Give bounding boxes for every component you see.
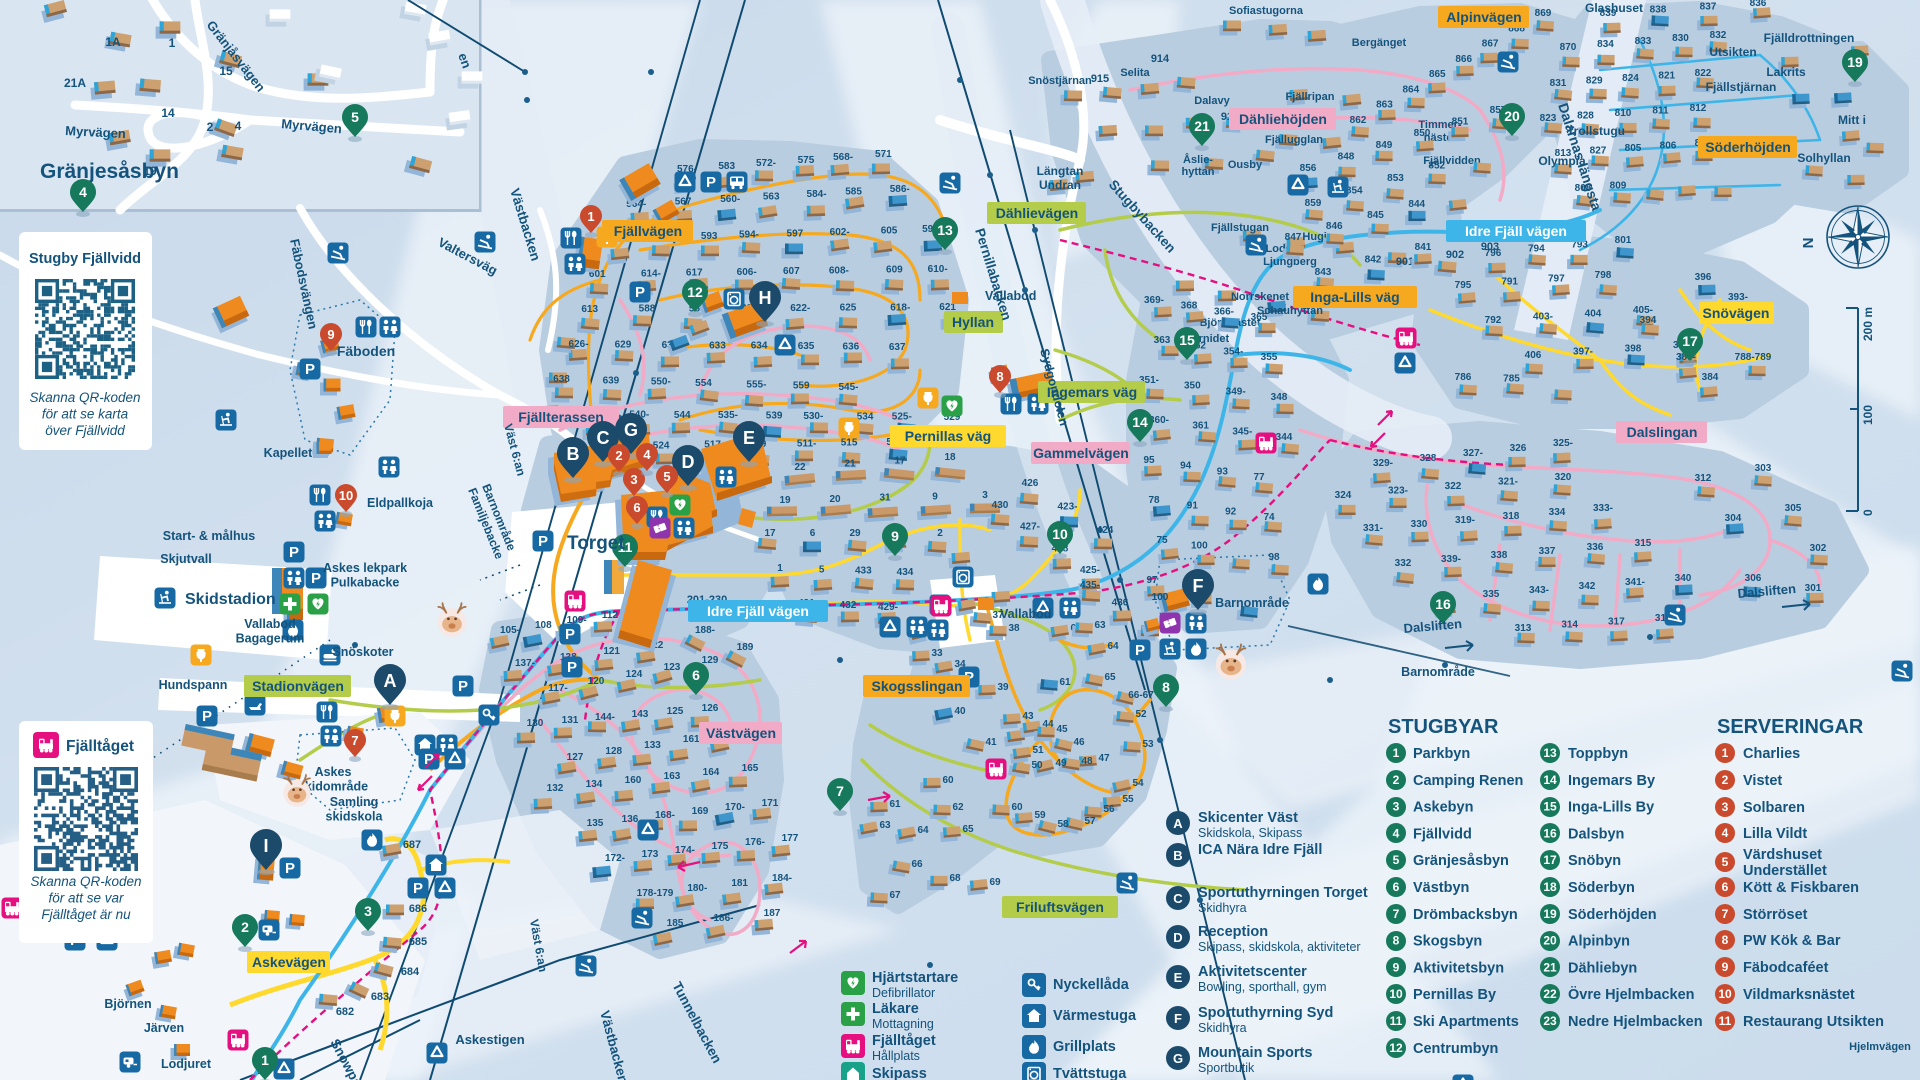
svg-text:17: 17: [764, 528, 776, 539]
svg-text:Stugby Fjällvidd: Stugby Fjällvidd: [29, 251, 141, 267]
svg-text:för att se karta: för att se karta: [42, 407, 129, 422]
svg-text:126: 126: [702, 703, 719, 714]
svg-text:7: 7: [1722, 907, 1729, 921]
svg-text:Nedre Hjelmbacken: Nedre Hjelmbacken: [1568, 1014, 1703, 1030]
svg-text:685: 685: [409, 936, 427, 948]
svg-text:618-: 618-: [890, 302, 910, 313]
svg-text:Fjällugglan: Fjällugglan: [1265, 134, 1323, 146]
svg-text:Sportuthyrning Syd: Sportuthyrning Syd: [1198, 1005, 1333, 1021]
svg-text:64: 64: [1107, 641, 1119, 652]
svg-text:Restaurang Utsikten: Restaurang Utsikten: [1743, 1014, 1884, 1030]
svg-text:365: 365: [1251, 312, 1268, 323]
svg-text:823: 823: [1540, 113, 1557, 124]
svg-text:433: 433: [855, 566, 872, 577]
svg-text:100: 100: [1152, 592, 1169, 603]
svg-text:14: 14: [161, 106, 175, 120]
svg-text:607: 607: [783, 266, 800, 277]
svg-text:4: 4: [643, 447, 651, 462]
svg-text:75: 75: [1156, 535, 1168, 546]
svg-text:5: 5: [663, 469, 670, 484]
svg-text:4: 4: [1722, 826, 1729, 840]
svg-text:PW Kök & Bar: PW Kök & Bar: [1743, 933, 1841, 949]
svg-text:844: 844: [1408, 199, 1425, 210]
svg-text:Fjällterassen: Fjällterassen: [518, 409, 604, 425]
svg-text:0: 0: [1861, 509, 1875, 516]
svg-text:178-179: 178-179: [637, 888, 674, 899]
svg-text:P: P: [565, 626, 575, 643]
svg-text:23: 23: [1543, 1014, 1557, 1028]
svg-text:Lilla Vildt: Lilla Vildt: [1743, 826, 1807, 842]
svg-text:1A: 1A: [105, 35, 121, 49]
svg-text:348: 348: [1271, 392, 1288, 403]
svg-text:1: 1: [1722, 746, 1729, 760]
svg-text:P: P: [413, 880, 423, 897]
svg-text:584-: 584-: [807, 189, 827, 200]
svg-text:16: 16: [1435, 596, 1451, 612]
svg-text:339-: 339-: [1441, 554, 1461, 565]
svg-text:345-: 345-: [1232, 426, 1252, 437]
svg-text:Barnområde: Barnområde: [1215, 596, 1289, 610]
svg-text:605: 605: [881, 225, 898, 236]
svg-text:45: 45: [1056, 724, 1068, 735]
svg-text:638: 638: [553, 374, 570, 385]
svg-text:47: 47: [1098, 753, 1110, 764]
svg-text:Bowling, sporthall, gym: Bowling, sporthall, gym: [1198, 980, 1327, 994]
svg-text:7: 7: [351, 733, 358, 748]
svg-text:168-: 168-: [655, 810, 675, 821]
svg-text:683: 683: [371, 991, 389, 1003]
svg-text:851: 851: [1452, 117, 1469, 128]
svg-text:863: 863: [1376, 100, 1393, 111]
svg-text:Toppbyn: Toppbyn: [1568, 746, 1628, 762]
svg-text:Övre Hjelmbacken: Övre Hjelmbacken: [1568, 986, 1695, 1003]
svg-text:Idre Fjäll vägen: Idre Fjäll vägen: [1465, 223, 1567, 239]
svg-text:867: 867: [1482, 39, 1499, 50]
svg-text:22: 22: [794, 462, 806, 473]
svg-text:8: 8: [1393, 934, 1400, 948]
svg-text:74: 74: [1263, 512, 1275, 523]
svg-text:567: 567: [675, 197, 692, 208]
svg-text:19: 19: [779, 495, 791, 506]
svg-text:575: 575: [798, 155, 815, 166]
svg-text:859: 859: [1305, 198, 1322, 209]
svg-text:9: 9: [327, 327, 334, 342]
svg-text:368: 368: [1181, 301, 1198, 312]
svg-text:841: 841: [1415, 242, 1432, 253]
svg-text:843: 843: [1315, 267, 1332, 278]
svg-text:324: 324: [1335, 490, 1352, 501]
svg-text:A: A: [384, 671, 397, 691]
svg-text:Fjälltåget är nu: Fjälltåget är nu: [41, 907, 131, 922]
svg-text:20: 20: [1543, 934, 1557, 948]
svg-text:78: 78: [1148, 495, 1160, 506]
svg-text:Skipass, skidskola, aktivitete: Skipass, skidskola, aktiviteter: [1198, 940, 1361, 954]
svg-text:Eldpallkoja: Eldpallkoja: [367, 496, 434, 510]
svg-text:Bergänget: Bergänget: [1352, 37, 1407, 49]
svg-text:530-: 530-: [803, 411, 823, 422]
svg-text:5: 5: [819, 564, 825, 575]
svg-text:187: 187: [764, 908, 781, 919]
svg-text:550-: 550-: [651, 377, 671, 388]
svg-text:Skogsslingan: Skogsslingan: [871, 678, 962, 694]
svg-text:Aktivitetsbyn: Aktivitetsbyn: [1413, 960, 1504, 976]
svg-text:560-: 560-: [720, 194, 740, 205]
svg-text:46: 46: [1073, 737, 1085, 748]
svg-text:Inga-Lills By: Inga-Lills By: [1568, 800, 1654, 816]
svg-text:för att se var: för att se var: [48, 891, 124, 906]
svg-text:50: 50: [1031, 760, 1043, 771]
svg-text:68: 68: [949, 873, 961, 884]
svg-text:845: 845: [1367, 210, 1384, 221]
svg-text:67: 67: [889, 890, 901, 901]
svg-text:Västbyn: Västbyn: [1413, 880, 1469, 896]
svg-text:41: 41: [985, 737, 997, 748]
svg-text:C: C: [1173, 891, 1183, 906]
svg-text:127: 127: [567, 752, 584, 763]
svg-text:686: 686: [409, 903, 427, 915]
svg-text:796: 796: [1485, 248, 1502, 259]
svg-text:Understället: Understället: [1743, 863, 1827, 879]
svg-text:3: 3: [982, 490, 988, 501]
svg-text:135: 135: [587, 818, 604, 829]
svg-text:20: 20: [829, 494, 841, 505]
svg-text:361: 361: [1192, 421, 1209, 432]
svg-text:320: 320: [1555, 472, 1572, 483]
svg-text:585: 585: [845, 187, 862, 198]
svg-text:870: 870: [1560, 42, 1577, 53]
svg-text:137-: 137-: [515, 658, 535, 669]
svg-text:33: 33: [931, 648, 943, 659]
svg-text:403-: 403-: [1533, 312, 1553, 323]
svg-text:Dähliehöjden: Dähliehöjden: [1239, 111, 1327, 127]
svg-text:Hjärtstartare: Hjärtstartare: [872, 970, 958, 986]
svg-text:Järven: Järven: [144, 1021, 184, 1035]
svg-text:Värmestuga: Värmestuga: [1053, 1008, 1137, 1024]
svg-text:Inga-Lills väg: Inga-Lills väg: [1310, 289, 1399, 305]
svg-text:P: P: [305, 361, 315, 378]
svg-text:Torget: Torget: [567, 533, 625, 554]
svg-text:349-: 349-: [1226, 386, 1246, 397]
svg-text:Snöbyn: Snöbyn: [1568, 853, 1621, 869]
svg-text:Pulkabacke: Pulkabacke: [331, 575, 400, 589]
svg-text:333-: 333-: [1593, 503, 1613, 514]
svg-text:684: 684: [401, 966, 420, 978]
svg-text:Dalavy: Dalavy: [1194, 95, 1230, 107]
svg-text:4: 4: [235, 119, 242, 133]
svg-text:123: 123: [664, 662, 681, 673]
svg-text:Västvägen: Västvägen: [706, 725, 776, 741]
svg-text:6: 6: [1393, 880, 1400, 894]
svg-text:406: 406: [1525, 350, 1542, 361]
svg-text:9: 9: [932, 491, 938, 502]
svg-text:829: 829: [1586, 76, 1603, 87]
svg-text:6: 6: [692, 667, 700, 683]
svg-text:515: 515: [841, 438, 858, 449]
svg-text:10: 10: [1389, 987, 1403, 1001]
svg-text:Mountain Sports: Mountain Sports: [1198, 1045, 1312, 1061]
svg-text:125: 125: [667, 706, 684, 717]
svg-text:14: 14: [1132, 414, 1148, 430]
svg-text:51: 51: [1032, 745, 1044, 756]
svg-text:G: G: [1173, 1051, 1183, 1066]
svg-text:P: P: [567, 659, 577, 676]
svg-text:170-: 170-: [725, 802, 745, 813]
svg-text:384: 384: [1702, 372, 1719, 383]
svg-text:54: 54: [1132, 778, 1144, 789]
svg-text:568-: 568-: [833, 152, 853, 163]
svg-text:P: P: [289, 544, 299, 561]
svg-text:809: 809: [1610, 181, 1627, 192]
svg-text:Lakrits: Lakrits: [1766, 65, 1806, 79]
svg-text:P: P: [1135, 642, 1145, 659]
svg-text:634: 634: [751, 341, 768, 352]
svg-text:571: 571: [875, 149, 892, 160]
svg-text:404: 404: [1585, 308, 1602, 319]
svg-text:Vallabod: Vallabod: [985, 289, 1036, 303]
svg-text:12: 12: [1389, 1041, 1403, 1055]
svg-text:Längtan: Längtan: [1037, 164, 1084, 178]
svg-text:165: 165: [742, 763, 759, 774]
svg-text:60: 60: [1011, 802, 1023, 813]
svg-text:394: 394: [1640, 315, 1657, 326]
svg-text:Nyckellåda: Nyckellåda: [1053, 977, 1130, 993]
svg-text:801: 801: [1615, 235, 1632, 246]
svg-text:334: 334: [1549, 507, 1566, 518]
svg-text:363: 363: [1154, 335, 1171, 346]
svg-text:317: 317: [1608, 616, 1625, 627]
svg-text:424: 424: [1097, 525, 1114, 536]
svg-text:8: 8: [996, 369, 1003, 384]
svg-text:134: 134: [586, 779, 603, 790]
svg-text:21A: 21A: [64, 76, 86, 90]
svg-text:161: 161: [683, 734, 700, 745]
svg-text:Sportbutik: Sportbutik: [1198, 1061, 1255, 1075]
svg-text:65: 65: [1104, 672, 1116, 683]
svg-text:608-: 608-: [829, 265, 849, 276]
svg-text:Myrvägen: Myrvägen: [65, 123, 126, 141]
svg-text:1: 1: [169, 36, 176, 50]
svg-text:369-: 369-: [1144, 295, 1164, 306]
svg-text:40: 40: [954, 706, 966, 717]
svg-text:Skidskola, Skipass: Skidskola, Skipass: [1198, 826, 1302, 840]
svg-text:Vistet: Vistet: [1743, 773, 1782, 789]
svg-text:14: 14: [1543, 773, 1557, 787]
svg-text:38: 38: [1008, 623, 1020, 634]
svg-text:P: P: [706, 174, 716, 191]
svg-text:Tvättstuga: Tvättstuga: [1053, 1066, 1127, 1080]
svg-text:31: 31: [879, 493, 891, 504]
svg-text:635: 635: [798, 341, 815, 352]
svg-text:318: 318: [1503, 511, 1520, 522]
svg-text:D: D: [1173, 930, 1182, 945]
svg-text:172-: 172-: [605, 853, 625, 864]
svg-text:423-: 423-: [1057, 502, 1077, 513]
svg-text:21: 21: [844, 459, 856, 470]
svg-text:1: 1: [777, 563, 783, 574]
svg-text:174-: 174-: [675, 845, 695, 856]
svg-text:A: A: [1173, 816, 1183, 831]
svg-text:94: 94: [1180, 461, 1192, 472]
svg-text:10: 10: [339, 488, 353, 503]
svg-text:F: F: [1174, 1011, 1182, 1026]
svg-text:301: 301: [1805, 583, 1822, 594]
svg-text:429-: 429-: [878, 602, 898, 613]
svg-text:Ski Apartments: Ski Apartments: [1413, 1014, 1519, 1030]
svg-text:52: 52: [1135, 709, 1147, 720]
svg-text:9: 9: [1393, 960, 1400, 974]
svg-text:330: 330: [1411, 519, 1428, 530]
svg-text:63: 63: [879, 820, 891, 831]
svg-text:327-: 327-: [1463, 448, 1483, 459]
svg-text:185: 185: [667, 918, 684, 929]
svg-text:836: 836: [1750, 0, 1767, 9]
svg-text:434: 434: [897, 567, 914, 578]
svg-text:393-: 393-: [1728, 292, 1748, 303]
svg-text:3: 3: [364, 903, 372, 919]
svg-text:306: 306: [1745, 573, 1762, 584]
svg-text:430: 430: [992, 500, 1009, 511]
svg-text:335: 335: [1483, 589, 1500, 600]
svg-text:342: 342: [1579, 581, 1596, 592]
svg-text:Grillplats: Grillplats: [1053, 1039, 1116, 1055]
svg-text:Utsikten: Utsikten: [1709, 45, 1756, 59]
svg-text:852: 852: [1428, 161, 1445, 172]
svg-text:850: 850: [1414, 128, 1431, 139]
svg-text:39: 39: [997, 682, 1009, 693]
svg-text:304: 304: [1725, 513, 1742, 524]
svg-text:121: 121: [603, 646, 620, 657]
svg-text:Hållplats: Hållplats: [872, 1049, 920, 1063]
svg-text:43: 43: [1022, 711, 1034, 722]
svg-text:Söderhöjden: Söderhöjden: [1568, 907, 1657, 923]
svg-text:435-: 435-: [1080, 580, 1100, 591]
svg-text:Reception: Reception: [1198, 924, 1268, 940]
svg-text:Defibrillator: Defibrillator: [872, 986, 935, 1000]
svg-text:Vildmarksnästet: Vildmarksnästet: [1743, 987, 1855, 1003]
svg-text:129: 129: [702, 655, 719, 666]
svg-text:Åslie-: Åslie-: [1183, 153, 1213, 166]
svg-text:837: 837: [1700, 1, 1717, 12]
svg-text:830: 830: [1672, 33, 1689, 44]
svg-text:805: 805: [1625, 143, 1642, 154]
svg-text:Mottagning: Mottagning: [872, 1017, 934, 1031]
svg-text:321-: 321-: [1498, 477, 1518, 488]
svg-text:332: 332: [1395, 558, 1412, 569]
svg-text:337: 337: [1539, 546, 1556, 557]
svg-text:117-: 117-: [548, 683, 567, 694]
svg-text:583: 583: [718, 161, 735, 172]
svg-text:100: 100: [1861, 405, 1875, 425]
svg-text:Idre Fjäll vägen: Idre Fjäll vägen: [707, 603, 809, 619]
svg-text:64: 64: [917, 825, 929, 836]
svg-text:602-: 602-: [830, 227, 850, 238]
svg-text:Björnen: Björnen: [104, 997, 151, 1011]
svg-text:355: 355: [1261, 352, 1278, 363]
svg-text:Bagagerum: Bagagerum: [236, 631, 305, 645]
svg-text:827: 827: [1590, 146, 1607, 157]
svg-text:846: 846: [1326, 221, 1343, 232]
svg-text:P: P: [311, 570, 321, 587]
svg-text:P: P: [458, 678, 468, 695]
svg-text:Skidstadion: Skidstadion: [185, 591, 276, 608]
svg-text:Solbaren: Solbaren: [1743, 800, 1805, 816]
svg-text:Dähliebyn: Dähliebyn: [1568, 960, 1637, 976]
svg-text:2: 2: [615, 448, 622, 463]
svg-text:61: 61: [1059, 677, 1071, 688]
svg-text:Alpinbyn: Alpinbyn: [1568, 934, 1630, 950]
svg-text:N: N: [1800, 238, 1817, 249]
svg-text:17: 17: [1543, 853, 1557, 867]
svg-text:100: 100: [1191, 541, 1208, 552]
svg-text:177: 177: [782, 833, 799, 844]
svg-text:Undran: Undran: [1039, 178, 1081, 192]
svg-text:Fäbodcaféet: Fäbodcaféet: [1743, 960, 1829, 976]
svg-text:5: 5: [1722, 855, 1729, 869]
svg-text:902: 902: [1446, 249, 1464, 261]
svg-text:617: 617: [686, 268, 703, 279]
svg-text:625: 625: [840, 303, 857, 314]
svg-text:20: 20: [1504, 108, 1520, 124]
svg-text:15: 15: [219, 64, 233, 78]
svg-text:555-: 555-: [746, 379, 766, 390]
svg-text:614-: 614-: [641, 268, 661, 279]
svg-text:21: 21: [1194, 118, 1210, 134]
svg-text:Fäboden: Fäboden: [337, 343, 395, 359]
svg-text:822: 822: [1695, 68, 1712, 79]
svg-text:Solhyllan: Solhyllan: [1797, 151, 1850, 165]
svg-text:164: 164: [703, 767, 720, 778]
svg-text:Centrumbyn: Centrumbyn: [1413, 1041, 1498, 1057]
svg-text:5: 5: [351, 109, 359, 125]
svg-text:426: 426: [1022, 478, 1039, 489]
svg-text:606-: 606-: [737, 267, 757, 278]
svg-text:869: 869: [1535, 8, 1552, 19]
svg-text:848: 848: [1338, 151, 1355, 162]
svg-text:609: 609: [886, 265, 903, 276]
svg-text:Värdshuset: Värdshuset: [1743, 847, 1822, 863]
svg-text:181: 181: [731, 878, 748, 889]
svg-text:Söderbyn: Söderbyn: [1568, 880, 1635, 896]
svg-text:Askevägen: Askevägen: [252, 954, 326, 970]
svg-text:176-: 176-: [745, 837, 765, 848]
svg-text:425-: 425-: [1080, 565, 1100, 576]
svg-text:Sportuthyrningen Torget: Sportuthyrningen Torget: [1198, 885, 1368, 901]
svg-text:173: 173: [642, 849, 659, 860]
svg-text:Alpinvägen: Alpinvägen: [1446, 9, 1521, 25]
svg-text:3: 3: [1722, 800, 1729, 814]
svg-text:915: 915: [1091, 73, 1109, 85]
svg-text:55: 55: [1122, 794, 1134, 805]
svg-text:49: 49: [1055, 758, 1067, 769]
svg-text:57: 57: [1084, 816, 1096, 827]
svg-text:856: 856: [1300, 163, 1317, 174]
svg-text:302: 302: [1810, 543, 1827, 554]
svg-text:Aktivitetscenter: Aktivitetscenter: [1198, 964, 1307, 980]
svg-text:143: 143: [632, 709, 649, 720]
svg-text:E: E: [1174, 970, 1183, 985]
svg-text:19: 19: [1847, 54, 1863, 70]
svg-text:794: 794: [1528, 244, 1545, 255]
svg-text:340: 340: [1675, 573, 1692, 584]
svg-text:188-: 188-: [695, 625, 715, 636]
svg-text:128: 128: [605, 746, 622, 757]
svg-text:303: 303: [1755, 463, 1772, 474]
svg-text:53: 53: [1142, 739, 1154, 750]
svg-text:skidskola: skidskola: [326, 809, 384, 823]
svg-text:19: 19: [1543, 907, 1557, 921]
svg-text:189: 189: [737, 642, 754, 653]
svg-text:4: 4: [79, 184, 87, 200]
